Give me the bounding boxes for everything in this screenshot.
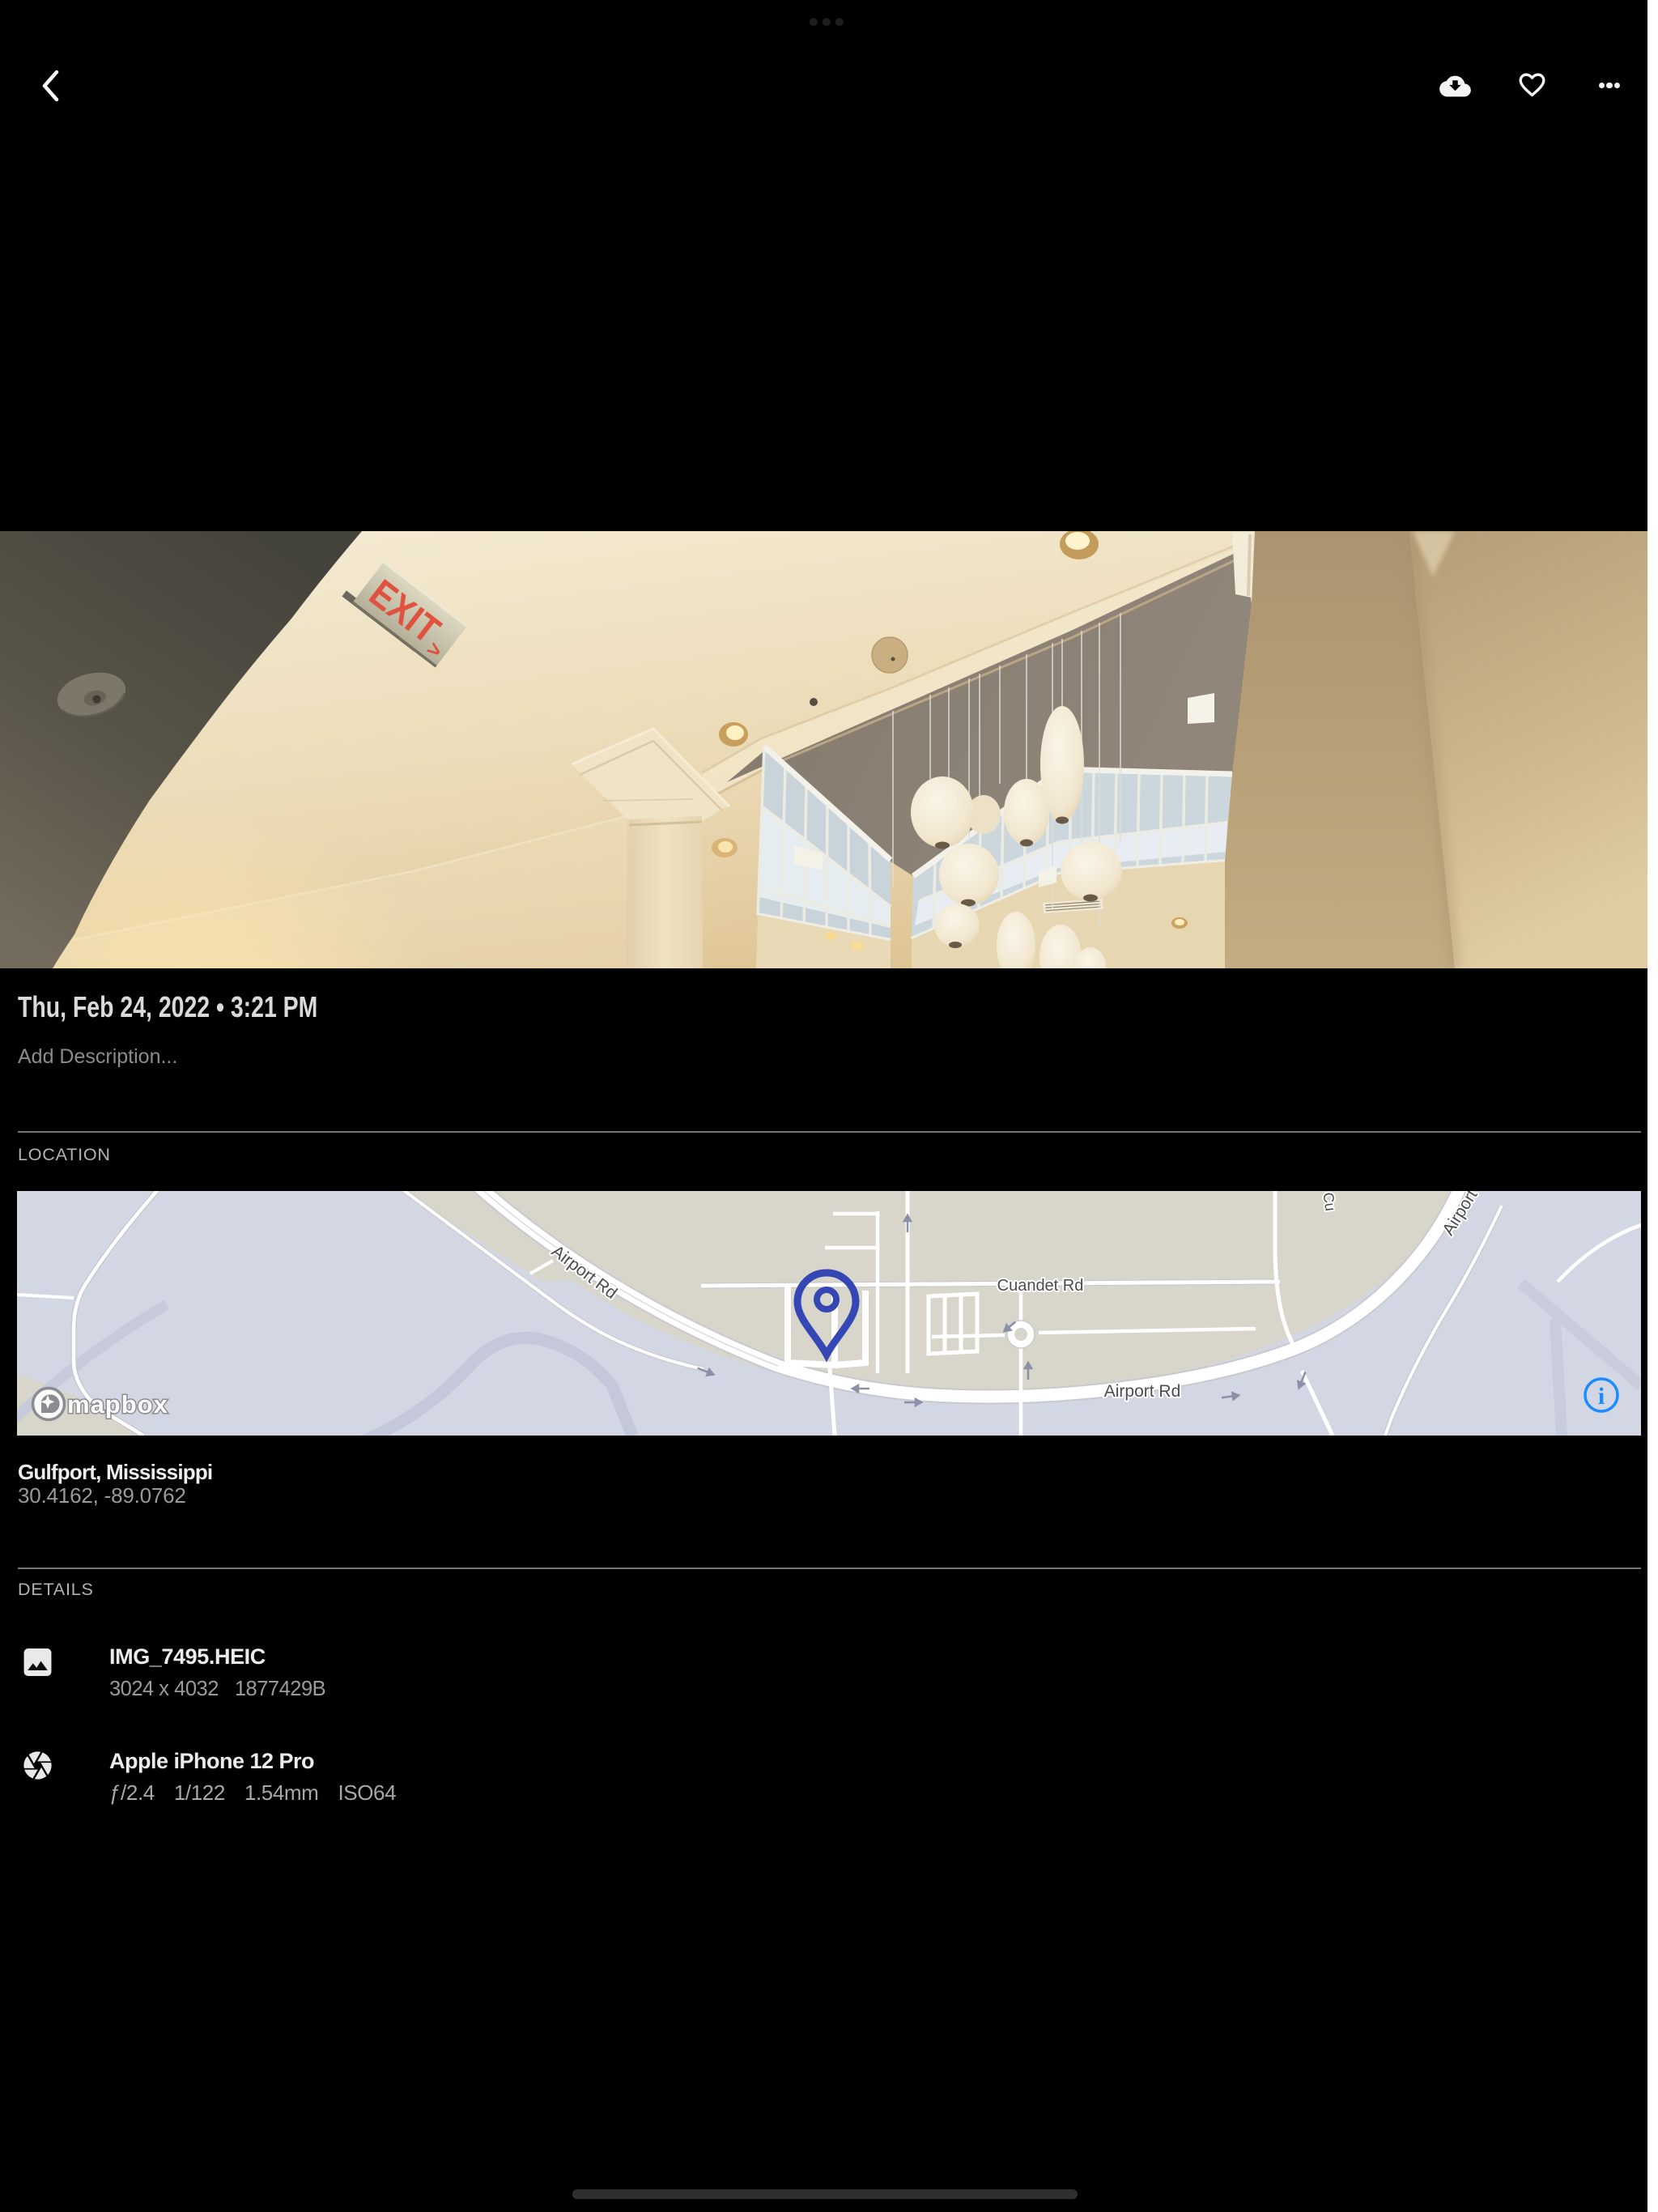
svg-text:mapbox: mapbox xyxy=(67,1390,168,1419)
svg-text:Cu: Cu xyxy=(1320,1191,1338,1212)
svg-text:Cuandet Rd: Cuandet Rd xyxy=(997,1277,1084,1295)
svg-text:i: i xyxy=(1598,1383,1605,1410)
svg-text:Airport Rd: Airport Rd xyxy=(1104,1382,1181,1401)
